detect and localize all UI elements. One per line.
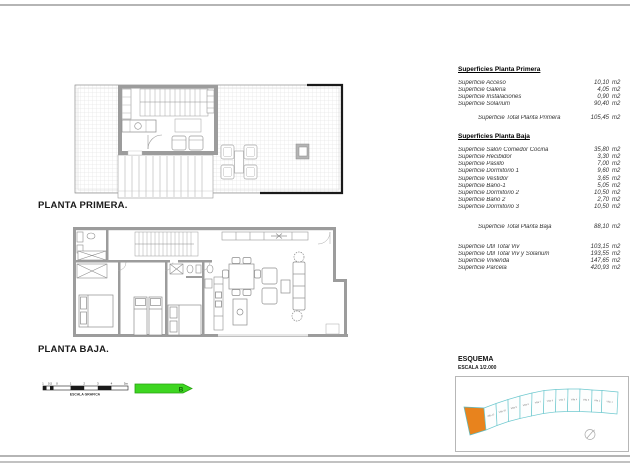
staircase (135, 232, 198, 256)
pergola (118, 155, 213, 198)
planta-baja-label: PLANTA BAJA. (38, 344, 109, 355)
planta-primera-label: PLANTA PRIMERA. (38, 200, 128, 211)
table-row: Superficie Dormitorio 2 10,50 m2 (458, 190, 626, 197)
table-row: Superficie Dormitorio 1 9,60 m2 (458, 168, 626, 175)
table-row: Superficie Instalaciones 0,90 m2 (458, 94, 626, 101)
planta-primera-drawing (68, 56, 353, 216)
compass-icon (585, 429, 595, 439)
drawing-sheet: PLANTA PRIMERA. (0, 0, 630, 465)
plant-icon (292, 311, 302, 321)
bed-dormitorio-3 (168, 305, 201, 335)
sliding-glass-door (218, 335, 308, 337)
stairs (140, 89, 208, 116)
dining-set (223, 258, 261, 296)
table-row: Superficie Salón Comedor Cocina 35,80 m2 (458, 147, 626, 154)
table-row: Superficie Pasillo 7,00 m2 (458, 161, 626, 168)
beds-dormitorio-2 (134, 297, 162, 335)
rug (281, 280, 290, 293)
ac-unit (296, 144, 309, 159)
sheet-bottom-border-2 (0, 461, 630, 463)
graphic-scale: 1 0,5 0 1 2 3 4 5m ESCALA GRAFICA B (40, 378, 200, 400)
esquema-title: ESQUEMA (458, 356, 493, 364)
door-opening (128, 151, 142, 155)
svg-text:0: 0 (56, 382, 58, 386)
bathroom-1 (77, 232, 106, 260)
svg-text:1: 1 (70, 382, 72, 386)
armchair (262, 268, 277, 284)
table-row: Superficie Vivienda 147,65 m2 (458, 258, 626, 265)
svg-text:3: 3 (97, 382, 99, 386)
table-row: Superficie Parcela 420,93 m2 (458, 265, 626, 272)
armchair (262, 288, 277, 304)
kitchen-cabinets (222, 232, 308, 240)
table-total-row: Superficie Total Planta Baja 88,10 m2 (458, 224, 626, 231)
svg-text:2: 2 (83, 382, 85, 386)
table-row: Superficie Solarium 90,40 m2 (458, 101, 626, 108)
esquema-scale: ESCALA 1/2.000 (458, 365, 496, 371)
planta-baja-drawing (68, 224, 353, 364)
table-row: Superficie Galeria 4,05 m2 (458, 87, 626, 94)
svg-text:5m: 5m (124, 382, 129, 386)
bed-dormitorio-1 (79, 295, 113, 327)
arrow-letter: B (179, 386, 184, 393)
svg-text:Villa 3: Villa 3 (583, 399, 590, 401)
living-room (262, 252, 339, 334)
table-row: Superficie Recibidor 3,30 m2 (458, 154, 626, 161)
highlighted-plot (464, 407, 486, 435)
sheet-bottom-border-1 (0, 455, 630, 457)
table-row: Superficie Baño-1 5,05 m2 (458, 183, 626, 190)
table-row: Superficie Vestidor 3,65 m2 (458, 176, 626, 183)
esquema-site-plan: Villa 11 Villa 10 Villa 9 Villa 8 Villa … (455, 376, 629, 452)
svg-text:4: 4 (111, 382, 113, 386)
sheet-top-border (0, 4, 630, 6)
table-row: Superficie Acceso 10,10 m2 (458, 80, 626, 87)
svg-text:1: 1 (42, 382, 44, 386)
table-summary: Superficie Util Total Viv 103,15 m2 Supe… (458, 244, 626, 273)
svg-text:Villa 4: Villa 4 (571, 399, 578, 401)
table-title: Superficies Planta Baja (458, 133, 626, 141)
table-row: Superficie Util Total Viv y Solarium 193… (458, 251, 626, 258)
direction-arrow-icon: B (135, 384, 192, 393)
closet (122, 89, 131, 119)
table-superficies-primera: Superficies Planta Primera Superficie Ac… (458, 66, 626, 122)
table-row: Superficie Dormitorio 3 10,50 m2 (458, 204, 626, 211)
terrace-step (326, 324, 339, 334)
table-row: Superficie Baño 2 2,70 m2 (458, 197, 626, 204)
table-title: Superficies Planta Primera (458, 66, 626, 74)
scale-bar: 1 0,5 0 1 2 3 4 5m ESCALA GRAFICA (42, 382, 128, 397)
wardrobe (77, 264, 107, 278)
table (175, 119, 201, 132)
kitchen-counter (214, 277, 223, 330)
svg-text:0,5: 0,5 (48, 382, 53, 386)
plant-icon (294, 252, 304, 262)
scale-bar-label: ESCALA GRAFICA (70, 393, 101, 397)
stair-core (118, 85, 218, 155)
table-total-row: Superficie Total Planta Primera 105,45 m… (458, 115, 626, 122)
kitchenette (122, 120, 156, 132)
table-superficies-baja: Superficies Planta Baja Superficie Salón… (458, 133, 626, 232)
table-row: Superficie Util Total Viv 103,15 m2 (458, 244, 626, 251)
kitchen-island (233, 299, 247, 325)
shelving-unit (207, 90, 214, 113)
